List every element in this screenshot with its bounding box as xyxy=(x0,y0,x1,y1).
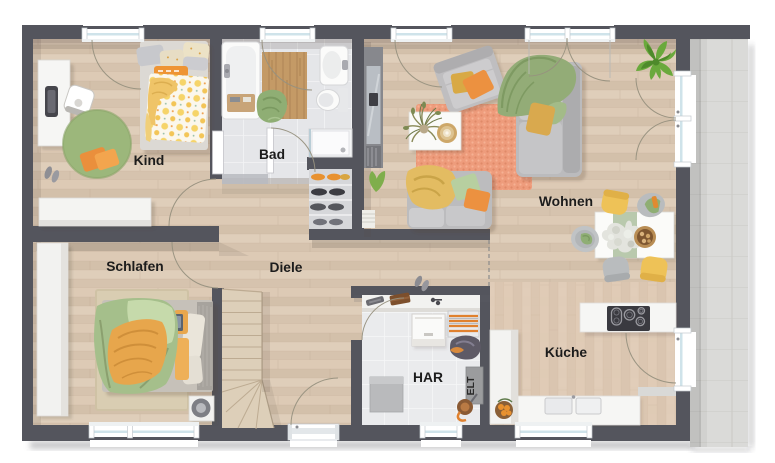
svg-text:Wohnen: Wohnen xyxy=(539,194,593,209)
svg-text:Küche: Küche xyxy=(545,345,587,360)
svg-text:Schlafen: Schlafen xyxy=(106,259,164,274)
svg-text:Bad: Bad xyxy=(259,147,285,162)
svg-text:HAR: HAR xyxy=(413,370,443,385)
svg-text:Diele: Diele xyxy=(270,260,303,275)
svg-text:Kind: Kind xyxy=(134,153,165,168)
svg-text:ELT: ELT xyxy=(465,376,477,396)
